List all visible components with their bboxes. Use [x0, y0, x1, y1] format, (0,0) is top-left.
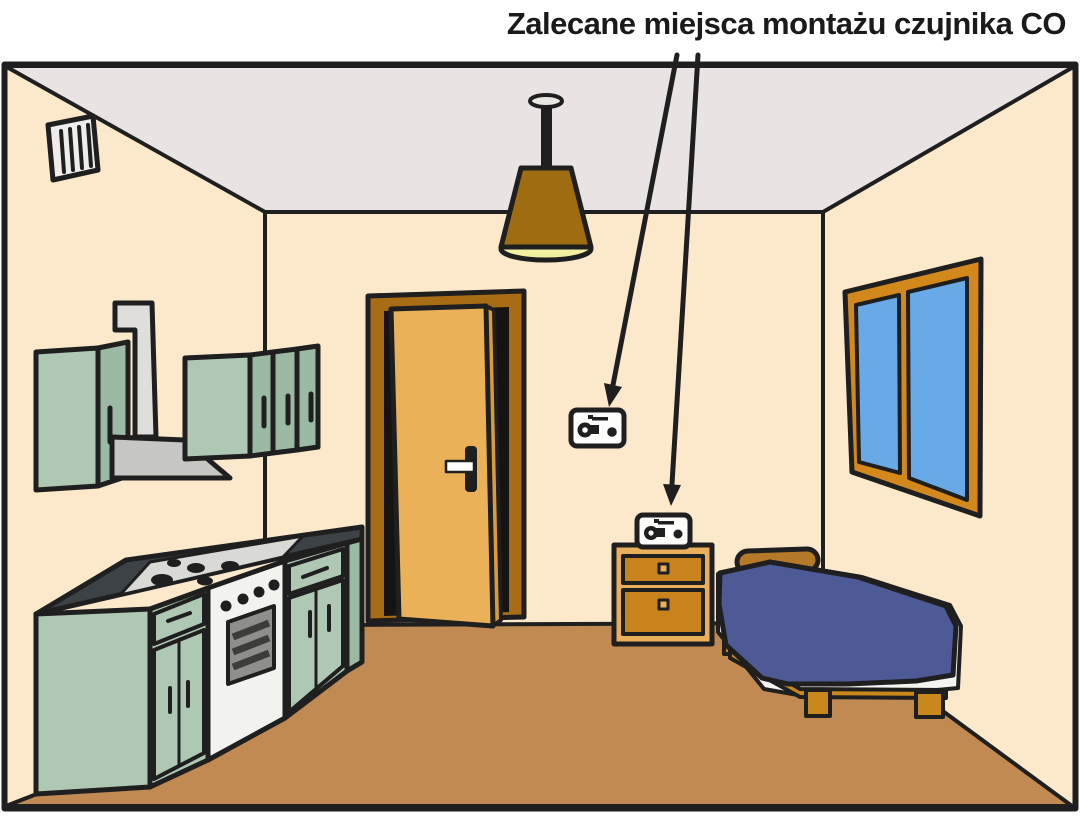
detector-label — [592, 417, 608, 421]
door-leaf — [391, 306, 493, 626]
stove-knob — [254, 587, 265, 598]
interior-door — [368, 291, 524, 626]
co-detector-nightstand — [637, 515, 690, 547]
room-scene — [0, 0, 1080, 819]
burner — [197, 577, 213, 586]
stove-knob — [221, 601, 232, 612]
detector-label-mark — [588, 415, 593, 419]
room-illustration: Zalecane miejsca montażu czujnika CO — [0, 0, 1080, 819]
detector-label-mark — [654, 519, 659, 523]
nightstand — [614, 545, 712, 644]
co-detector-wall — [571, 410, 624, 446]
lamp-mount — [530, 95, 562, 107]
diagram-title: Zalecane miejsca montażu czujnika CO — [0, 6, 1066, 42]
bed-leg — [806, 690, 830, 716]
cabinet-door — [36, 348, 98, 490]
burner — [221, 561, 239, 571]
cabinet-door — [273, 349, 297, 453]
vent-grille — [48, 116, 98, 180]
cabinet-door — [185, 355, 250, 459]
drawer-knob — [659, 600, 668, 609]
burner — [187, 563, 205, 573]
stove-knob — [238, 594, 249, 605]
cabinet-door — [297, 346, 318, 450]
detector-horn-hole — [582, 427, 588, 433]
counter-end-panel — [36, 609, 150, 794]
window — [845, 259, 981, 516]
stove-knob — [269, 580, 280, 591]
detector-horn-hole — [648, 530, 653, 535]
bed-leg — [916, 692, 943, 717]
window-pane — [908, 278, 967, 500]
burner — [151, 574, 173, 586]
burner — [167, 559, 181, 567]
lamp-rod — [541, 100, 552, 172]
cabinet-side — [347, 539, 362, 671]
upper-cabinets-right — [185, 346, 318, 459]
detector-led — [674, 530, 683, 539]
detector-led — [607, 427, 617, 437]
nightstand-drawer — [623, 590, 703, 634]
window-pane — [856, 295, 900, 473]
drawer-knob — [659, 564, 668, 573]
door-handle-bar — [446, 461, 474, 472]
detector-label — [658, 521, 674, 525]
